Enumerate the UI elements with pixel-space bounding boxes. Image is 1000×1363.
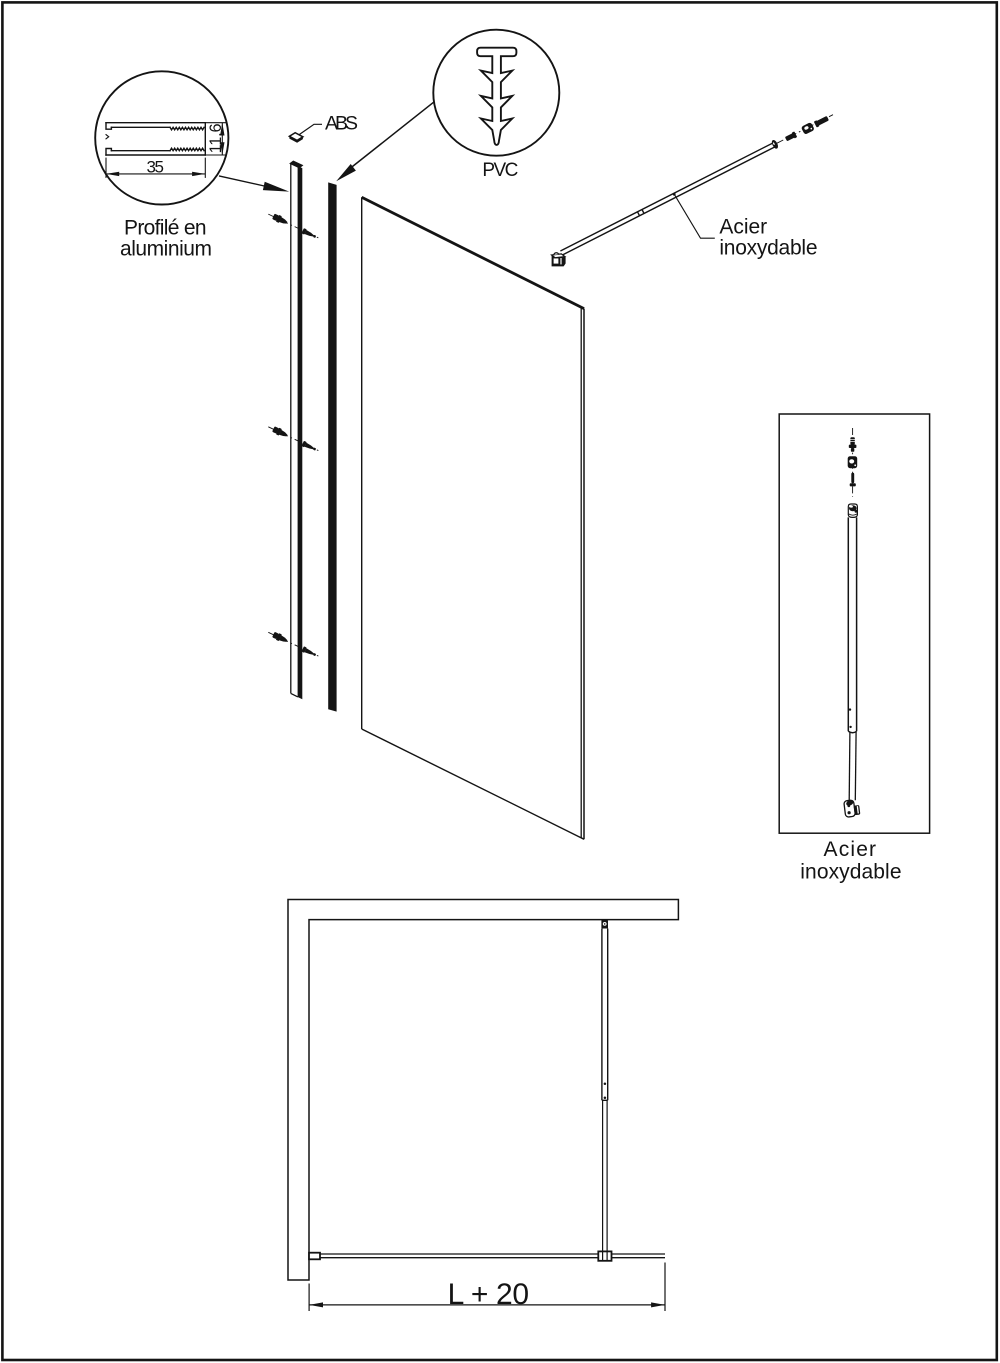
svg-text:Profilé en: Profilé en <box>124 217 207 240</box>
svg-text:35: 35 <box>146 158 164 177</box>
svg-text:PVC: PVC <box>482 160 518 181</box>
svg-text:ABS: ABS <box>325 112 358 134</box>
svg-text:aluminium: aluminium <box>120 237 212 260</box>
svg-text:inoxydable: inoxydable <box>719 236 817 259</box>
svg-text:Acier: Acier <box>719 216 767 239</box>
svg-text:Acier: Acier <box>824 838 877 861</box>
svg-text:inoxydable: inoxydable <box>800 861 901 884</box>
svg-text:11.6: 11.6 <box>207 123 225 153</box>
svg-text:L + 20: L + 20 <box>448 1278 529 1311</box>
